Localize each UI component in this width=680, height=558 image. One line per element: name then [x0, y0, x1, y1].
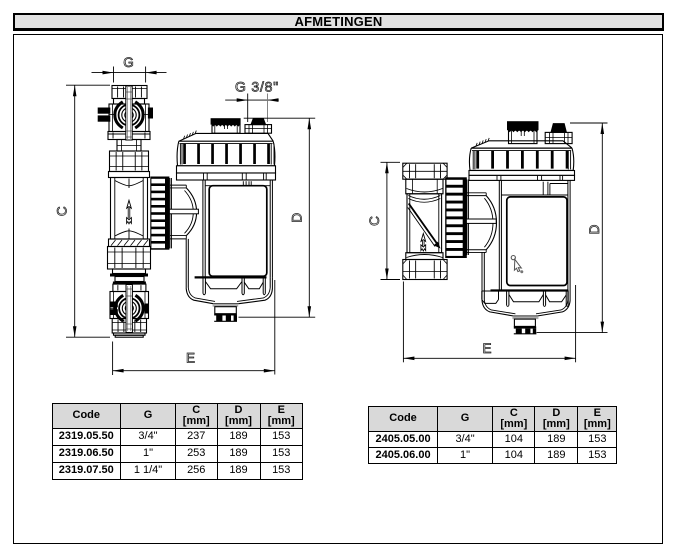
svg-text:D: D [587, 224, 602, 234]
svg-text:E: E [482, 341, 491, 356]
svg-text:D: D [290, 213, 305, 223]
svg-text:G: G [123, 55, 134, 70]
svg-text:G 3/8": G 3/8" [235, 79, 279, 95]
svg-text:E: E [186, 351, 195, 366]
svg-text:C: C [367, 216, 382, 226]
svg-text:C: C [55, 206, 70, 216]
